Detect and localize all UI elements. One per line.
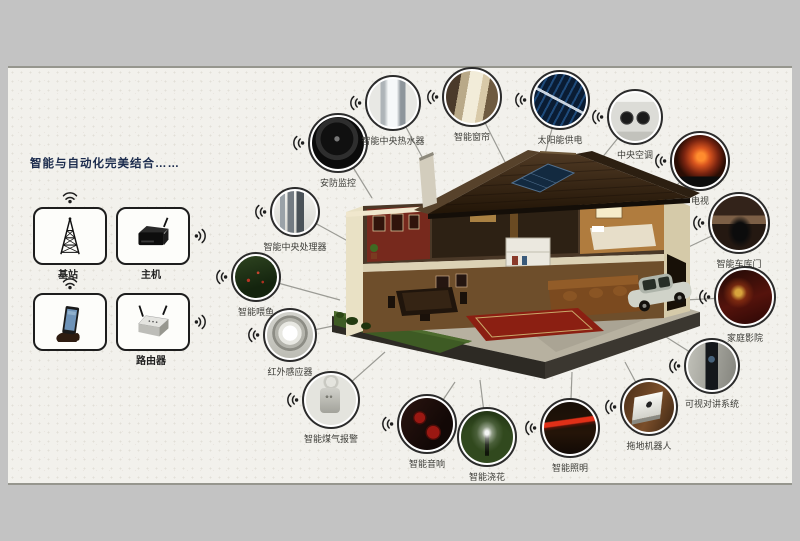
device-photo <box>624 382 674 432</box>
device-label: 智能中央热水器 <box>361 134 424 147</box>
node-home-theater: 家庭影院 <box>714 266 776 328</box>
wifi-waves-icon <box>653 152 667 170</box>
wifi-waves-icon <box>291 134 305 152</box>
wifi-waves-icon <box>246 326 260 344</box>
device-photo <box>712 196 766 250</box>
device-label: 拖地机器人 <box>626 439 671 452</box>
device-photo-frame <box>670 131 730 191</box>
device-label: 太阳能供电 <box>537 133 582 146</box>
node-tv: 电视 <box>670 131 730 191</box>
device-label: 智能中央处理器 <box>263 240 326 253</box>
device-photo-frame <box>620 378 678 436</box>
device-photo <box>544 402 596 454</box>
device-photo-frame <box>302 371 360 429</box>
device-photo-frame <box>684 338 740 394</box>
node-smart-lighting: 智能照明 <box>540 398 600 458</box>
node-central-processor: 智能中央处理器 <box>270 187 320 237</box>
device-photo-frame <box>530 70 590 130</box>
wifi-waves-icon <box>523 419 537 437</box>
device-photo-frame <box>397 394 457 454</box>
device-label: 红外感应器 <box>267 365 312 378</box>
node-fish-feeder: 智能喂鱼 <box>231 252 281 302</box>
device-photo <box>401 398 453 450</box>
device-photo <box>674 135 726 187</box>
device-photo <box>688 342 736 390</box>
wifi-waves-icon <box>513 91 527 109</box>
wifi-waves-icon <box>603 398 617 416</box>
device-label: 可视对讲系统 <box>685 397 739 410</box>
device-label: 电视 <box>691 194 709 207</box>
device-photo-frame <box>540 398 600 458</box>
device-photo <box>461 411 513 463</box>
wifi-waves-icon <box>691 214 705 232</box>
device-photo-frame <box>714 266 776 328</box>
wifi-waves-icon <box>697 288 711 306</box>
wifi-waves-icon <box>380 415 394 433</box>
device-photo <box>312 117 364 169</box>
wifi-waves-icon <box>348 94 362 112</box>
device-label: 安防监控 <box>320 176 356 189</box>
device-label: 智能音响 <box>409 457 445 470</box>
device-photo-frame <box>442 67 502 127</box>
node-security-camera: 安防监控 <box>308 113 368 173</box>
node-speakers: 智能音响 <box>397 394 457 454</box>
node-sprinkler: 智能浇花 <box>457 407 517 467</box>
node-gas-alarm: 智能煤气报警 <box>302 371 360 429</box>
device-photo-frame <box>308 113 368 173</box>
nodes-layer: 安防监控 智能中央热水器 智能窗帘 太阳能供电 中央空调 电视 <box>0 0 800 541</box>
device-photo <box>267 312 313 358</box>
node-mopping-robot: 拖地机器人 <box>620 378 678 436</box>
device-photo <box>274 191 316 233</box>
device-label: 智能照明 <box>552 461 588 474</box>
node-water-heater: 智能中央热水器 <box>365 75 421 131</box>
canvas: 智能与自动化完美结合…… 基站 主机 <box>0 0 800 541</box>
device-label: 中央空调 <box>617 148 653 161</box>
device-photo-frame <box>708 192 770 254</box>
device-label: 智能喂鱼 <box>238 305 274 318</box>
device-photo <box>718 270 772 324</box>
device-photo <box>611 93 659 141</box>
wifi-waves-icon <box>667 357 681 375</box>
device-label: 智能窗帘 <box>454 130 490 143</box>
device-photo-frame <box>607 89 663 145</box>
wifi-waves-icon <box>590 108 604 126</box>
device-photo-frame <box>365 75 421 131</box>
device-photo <box>235 256 277 298</box>
device-photo-frame <box>231 252 281 302</box>
device-photo <box>369 79 417 127</box>
wifi-waves-icon <box>285 391 299 409</box>
wifi-waves-icon <box>425 88 439 106</box>
wifi-waves-icon <box>214 268 228 286</box>
node-garage-door: 智能车库门 <box>708 192 770 254</box>
device-label: 智能浇花 <box>469 470 505 483</box>
device-label: 智能煤气报警 <box>304 432 358 445</box>
node-air-conditioner: 中央空调 <box>607 89 663 145</box>
node-solar-power: 太阳能供电 <box>530 70 590 130</box>
device-photo <box>306 375 356 425</box>
node-curtain: 智能窗帘 <box>442 67 502 127</box>
node-video-intercom: 可视对讲系统 <box>684 338 740 394</box>
device-photo-frame <box>457 407 517 467</box>
device-photo-frame <box>270 187 320 237</box>
wifi-waves-icon <box>253 203 267 221</box>
device-photo <box>534 74 586 126</box>
device-photo <box>446 71 498 123</box>
